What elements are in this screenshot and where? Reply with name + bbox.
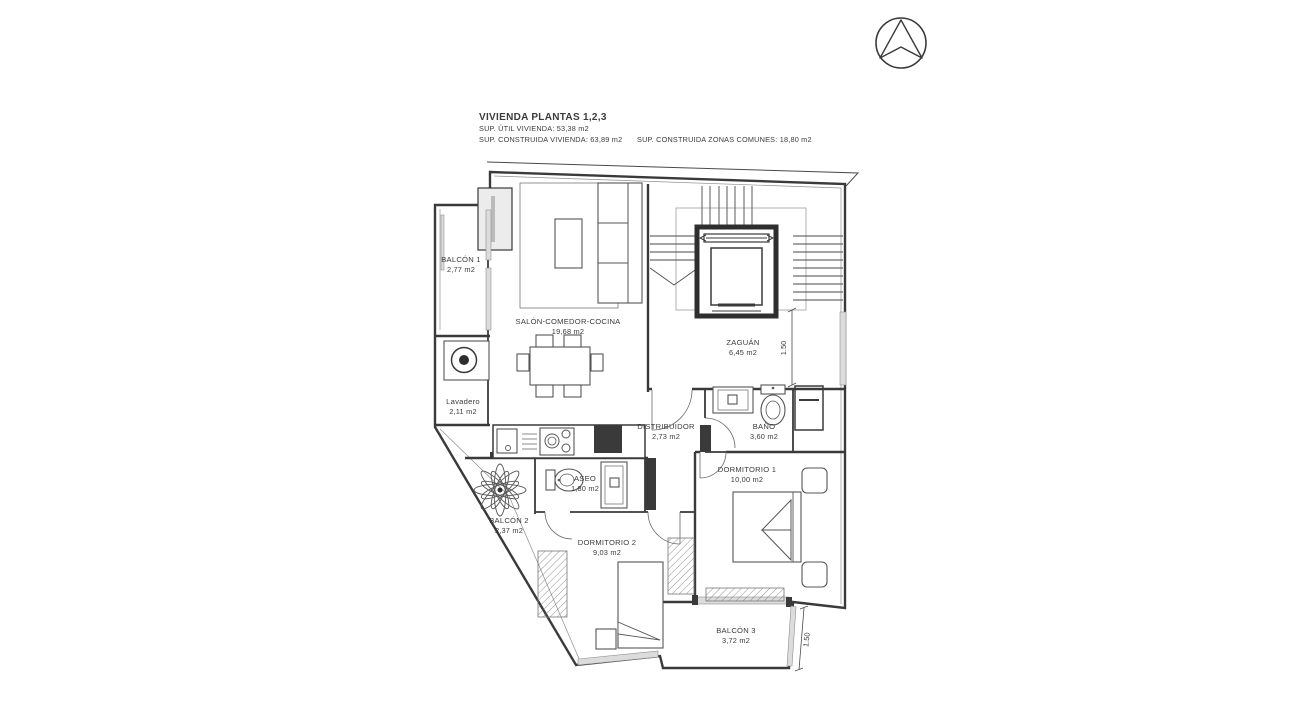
svg-text:2,73 m2: 2,73 m2 [652, 432, 680, 441]
elevator [697, 227, 776, 316]
svg-text:3,60 m2: 3,60 m2 [750, 432, 778, 441]
plant-icon [474, 464, 526, 516]
svg-text:19,68 m2: 19,68 m2 [552, 327, 584, 336]
svg-text:DISTRIBUIDOR: DISTRIBUIDOR [637, 422, 695, 431]
useful-area-text: SUP. ÚTIL VIVIENDA: 53,38 m2 [479, 124, 589, 133]
room-label-distribuidor: DISTRIBUIDOR 2,73 m2 [637, 422, 695, 441]
doors [545, 390, 735, 544]
svg-text:BALCÓN 1: BALCÓN 1 [441, 255, 481, 264]
room-label-balcon-2: BALCÓN 2 2,37 m2 [489, 516, 529, 535]
duct-shaft [795, 386, 823, 430]
kitchen-counter [493, 425, 645, 458]
wardrobe [538, 551, 567, 617]
svg-text:1,80 m2: 1,80 m2 [571, 484, 599, 493]
double-bed [733, 492, 801, 562]
svg-text:DORMITORIO 1: DORMITORIO 1 [718, 465, 777, 474]
bathroom-fixtures [713, 385, 785, 425]
svg-text:2,37 m2: 2,37 m2 [495, 526, 523, 535]
svg-text:2,11 m2: 2,11 m2 [449, 407, 477, 416]
window-dorm2 [578, 651, 658, 665]
floor-plan-sheet: VIVIENDA PLANTAS 1,2,3 SUP. ÚTIL VIVIEND… [0, 0, 1290, 727]
window-jamb [786, 597, 792, 607]
window-slit [491, 196, 495, 242]
svg-text:9,03 m2: 9,03 m2 [593, 548, 621, 557]
window-salon-balcon1 [486, 210, 491, 260]
wall-poche [700, 425, 711, 452]
plan-title: VIVIENDA PLANTAS 1,2,3 [479, 112, 607, 123]
svg-text:ZAGUÁN: ZAGUÁN [726, 338, 759, 347]
toilet [761, 385, 785, 425]
window-salon-balcon1-lower [486, 268, 491, 330]
chair [564, 385, 581, 397]
svg-text:2,77 m2: 2,77 m2 [447, 265, 475, 274]
room-label-bano: BAÑO 3,60 m2 [750, 422, 778, 441]
sofa [598, 183, 642, 303]
room-label-balcon-3: BALCÓN 3 3,72 m2 [716, 626, 756, 645]
room-label-balcon-1: BALCÓN 1 2,77 m2 [441, 255, 481, 274]
coffee-table [555, 219, 582, 268]
dimension-label: 1.50 [801, 632, 811, 647]
room-label-dormitorio-2: DORMITORIO 2 9,03 m2 [578, 538, 637, 557]
dimension-zaguan: 1.50 [779, 308, 796, 387]
elevator-beam [700, 234, 773, 242]
window-jamb [692, 595, 698, 605]
common-area-text: SUP. CONSTRUIDA ZONAS COMUNES: 18,80 m2 [637, 135, 812, 144]
room-label-salon: SALÓN-COMEDOR-COCINA 19,68 m2 [516, 317, 622, 336]
svg-text:6,45 m2: 6,45 m2 [729, 348, 757, 357]
svg-text:SALÓN-COMEDOR-COCINA: SALÓN-COMEDOR-COCINA [516, 317, 622, 326]
room-label-lavadero: Lavadero 2,11 m2 [446, 397, 480, 416]
svg-text:BAÑO: BAÑO [753, 422, 776, 431]
svg-text:BALCÓN 2: BALCÓN 2 [489, 516, 529, 525]
chair [591, 354, 603, 371]
svg-text:10,00 m2: 10,00 m2 [731, 475, 763, 484]
window-zaguan-right [840, 312, 846, 385]
dimension-balcon3: 1.50 [795, 606, 812, 671]
chair [517, 354, 529, 371]
wardrobe [706, 588, 784, 601]
room-label-dormitorio-1: DORMITORIO 1 10,00 m2 [718, 465, 777, 484]
floor-plan-drawing: VIVIENDA PLANTAS 1,2,3 SUP. ÚTIL VIVIEND… [0, 0, 1290, 727]
title-block: VIVIENDA PLANTAS 1,2,3 SUP. ÚTIL VIVIEND… [479, 112, 812, 144]
room-label-aseo: ASEO 1,80 m2 [571, 474, 599, 493]
chair [536, 385, 553, 397]
dimension-label: 1.50 [779, 341, 788, 356]
nightstand [802, 468, 827, 493]
single-bed [618, 562, 663, 648]
nightstand [802, 562, 827, 587]
svg-text:ASEO: ASEO [574, 474, 596, 483]
bathroom-sink [713, 387, 753, 413]
window-balcon3-right [787, 606, 796, 666]
dining-table [517, 335, 603, 397]
nightstand [596, 629, 616, 649]
svg-text:3,72 m2: 3,72 m2 [722, 636, 750, 645]
fridge [594, 425, 622, 453]
chair [564, 335, 581, 347]
svg-text:Lavadero: Lavadero [446, 397, 480, 406]
wall-poche [645, 458, 656, 510]
room-label-zaguan: ZAGUÁN 6,45 m2 [726, 338, 759, 357]
bedroom1-furniture [706, 468, 827, 601]
washing-machine [444, 341, 489, 380]
stove [540, 428, 574, 455]
north-arrow-icon [876, 18, 926, 68]
shower-basin [601, 462, 627, 508]
kitchen-sink [497, 429, 517, 453]
svg-text:DORMITORIO 2: DORMITORIO 2 [578, 538, 637, 547]
built-area-text: SUP. CONSTRUIDA VIVIENDA: 63,89 m2 [479, 135, 622, 144]
aseo-door [545, 512, 572, 539]
wardrobe [668, 538, 694, 594]
svg-text:BALCÓN 3: BALCÓN 3 [716, 626, 756, 635]
living-room-furniture [517, 183, 642, 397]
chair [536, 335, 553, 347]
